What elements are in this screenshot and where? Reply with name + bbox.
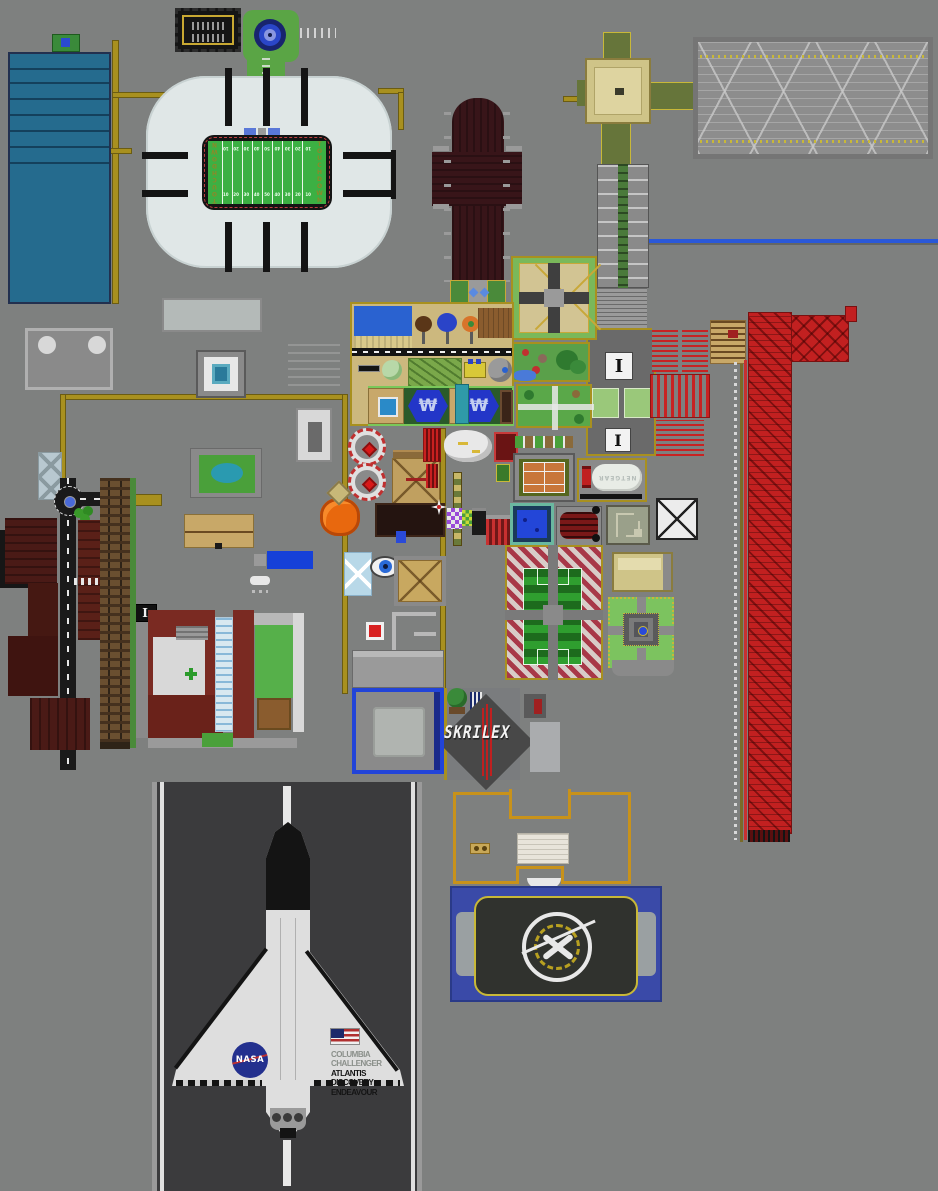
- us-flag: [330, 1028, 360, 1045]
- farm-field: [255, 625, 293, 698]
- fleet-name-discovery: DISCOVERY: [331, 1078, 411, 1087]
- ladder-structure: [710, 320, 746, 364]
- gray-globe: [488, 358, 512, 382]
- cpu-chip-building: [175, 8, 241, 52]
- cathedral-buttresses: [503, 112, 510, 282]
- green-globe: [382, 360, 402, 380]
- circuit-board-pad: [606, 505, 650, 545]
- ziggurat: [623, 613, 659, 646]
- cathedral-buttresses: [444, 112, 451, 282]
- tv-screen: [212, 364, 230, 384]
- pond: [514, 370, 536, 381]
- tv-building: [196, 350, 246, 398]
- tan-hall: [612, 552, 673, 592]
- greenhouse-room: [592, 388, 619, 418]
- red-lattice-tower: [682, 328, 708, 372]
- greenhouse-room: [624, 388, 651, 418]
- stadium-aisle: [343, 190, 393, 197]
- path-segment: [342, 394, 348, 694]
- potted-tree: [446, 688, 468, 714]
- maroon-block: [8, 636, 58, 696]
- maroon-block: [30, 698, 90, 750]
- yard-numbers-bottom: 102030405040302010: [223, 192, 311, 197]
- space-shuttle: NASA COLUMBIA CHALLENGER ATLANTIS DISCOV…: [168, 822, 408, 1144]
- stadium-aisle: [142, 152, 188, 159]
- black-panel: [472, 508, 486, 535]
- path-segment: [108, 148, 132, 154]
- dark-slab-building: [375, 503, 445, 537]
- park-bench: [358, 365, 380, 372]
- red-lattice-tower: [656, 420, 704, 456]
- payload-bay-line: [295, 918, 296, 1080]
- wheat-door: [215, 543, 222, 549]
- white-hall: [296, 408, 332, 462]
- press-box: [244, 128, 256, 135]
- stadium-aisle: [391, 150, 396, 199]
- maroon-block: [28, 583, 58, 641]
- fleet-name-atlantis: ATLANTIS: [331, 1069, 411, 1078]
- router-brand-label: NETGEAR: [598, 474, 637, 481]
- railway: [100, 478, 130, 748]
- endzone-left: TOUCHDOWN: [208, 141, 222, 204]
- track-lawn-strip: [130, 478, 136, 748]
- park-beach: [354, 336, 412, 348]
- maroon-block: [5, 518, 57, 584]
- info-marker-2: I: [605, 428, 631, 452]
- currency-glyph: ₩: [470, 396, 489, 416]
- chip-comb: [192, 22, 224, 30]
- cathedral-buttresses: [506, 146, 522, 151]
- stadium-aisle: [142, 190, 188, 197]
- stairs: [595, 288, 647, 328]
- cart-canopy: [468, 359, 473, 364]
- ziggurat-gem: [638, 626, 648, 636]
- hospital-wing-south: [148, 695, 223, 738]
- dirt-field: [478, 308, 512, 338]
- yard-number: 40: [275, 146, 281, 151]
- pavilion-ramp-north: [603, 32, 631, 60]
- checker-tower-purple: [447, 508, 462, 529]
- yard-number: 40: [274, 192, 280, 197]
- tree: [574, 414, 584, 424]
- blue-bin: [396, 531, 406, 543]
- router-building: NETGEAR: [592, 464, 642, 491]
- park-road: [352, 348, 512, 356]
- coaster-truss-column: [748, 312, 792, 834]
- coaster-rail-line: [744, 360, 747, 840]
- road-junction: [543, 605, 563, 625]
- courtyard-fixture: [176, 626, 208, 640]
- green-plot: [496, 464, 510, 482]
- kiosk-screen: [378, 397, 398, 417]
- gold-ornament: [470, 843, 490, 854]
- garden-plots-row: [515, 436, 573, 448]
- yard-number: 30: [285, 146, 291, 151]
- pool-dot: [523, 518, 527, 522]
- tree-pot: [449, 707, 465, 714]
- carnival-ride-pad: [348, 463, 386, 501]
- monorail-line: [648, 239, 938, 243]
- payload-bay-line: [280, 918, 281, 1080]
- path-segment: [112, 40, 119, 304]
- shuttle-aft: [270, 1108, 306, 1130]
- berry-bush: [522, 349, 529, 356]
- press-box: [258, 128, 266, 135]
- tree: [524, 390, 534, 400]
- tree-trunk: [422, 330, 425, 344]
- kiosk-building: [368, 388, 404, 424]
- red-door: [534, 699, 542, 714]
- farm-dirt-patch: [257, 698, 291, 730]
- nasa-meatball: NASA: [232, 1042, 268, 1078]
- street-bench: [250, 576, 270, 585]
- snowflake-panel: [344, 552, 372, 596]
- stadium-aisle: [263, 222, 270, 272]
- warehouse-rivet-row: [700, 140, 926, 143]
- gift-box: [366, 622, 384, 640]
- fleet-names: COLUMBIA CHALLENGER ATLANTIS DISCOVERY E…: [331, 1050, 411, 1097]
- stadium-aisle: [301, 222, 308, 272]
- red-cabin: [728, 330, 738, 338]
- green-cross: [185, 668, 197, 680]
- overhead-city-map: TOUCHDOWN TOUCHDOWN 102030405040302010 1…: [0, 0, 938, 1191]
- small-pyramid: [398, 560, 442, 602]
- hall-door: [308, 422, 322, 452]
- stadium-aisle: [225, 68, 232, 126]
- eye-pupil: [383, 564, 388, 569]
- mini-park: [516, 384, 592, 428]
- roundabout-center: [268, 33, 272, 37]
- tree-foliage: [447, 688, 467, 708]
- endzone-right-label: TOUCHDOWN: [316, 141, 322, 204]
- tree: [572, 390, 580, 398]
- nasa-wordmark: NASA: [236, 1055, 264, 1065]
- yard-number: 50: [264, 146, 270, 151]
- tan-hall-side: [663, 554, 671, 590]
- cloud-sculpture: [444, 430, 492, 462]
- teal-roof-building: [8, 52, 111, 304]
- coaster-queue-line: [734, 362, 737, 840]
- coaster-truss-hook: [845, 306, 857, 322]
- stage-speaker: [38, 336, 56, 354]
- yard-numbers-top: 102030405040302010: [223, 146, 311, 151]
- cross-bar: [185, 672, 197, 676]
- stadium-aisle: [343, 152, 393, 159]
- path-segment: [398, 92, 404, 130]
- router-shadow-bar: [580, 494, 642, 499]
- crossed-square: [656, 498, 698, 540]
- sign-lines: [288, 344, 340, 392]
- pavilion-core: [615, 88, 624, 95]
- path-segment: [132, 494, 162, 506]
- street-dots: [252, 590, 268, 593]
- dark-door-building: [500, 390, 513, 424]
- yard-number: 10: [305, 192, 311, 197]
- teal-pillar: [455, 384, 469, 424]
- stage-speaker: [88, 336, 106, 354]
- dotted-walkway: [300, 28, 336, 38]
- machine-knob: [592, 534, 600, 542]
- info-marker-glyph: I: [614, 431, 621, 450]
- cloud-accent: [458, 442, 468, 445]
- tan-hall-skylight: [618, 558, 661, 570]
- brown-tree: [415, 316, 432, 332]
- cart-canopy: [476, 359, 481, 364]
- red-bar-towers: [650, 374, 710, 418]
- skrillex-logo: SKRILEX: [434, 722, 520, 744]
- yard-number: 40: [254, 192, 260, 197]
- cloud-accent: [472, 450, 480, 453]
- tree-garden: [510, 342, 590, 382]
- press-box: [268, 128, 280, 135]
- farm-white-frame: [293, 613, 304, 732]
- tree-trunk: [470, 330, 473, 344]
- skrillex-logo-text: SKRILEX: [442, 723, 512, 743]
- yard-number: 20: [233, 146, 239, 151]
- yard-number: 20: [295, 192, 301, 197]
- yard-number: 10: [223, 192, 229, 197]
- yard-number: 20: [233, 192, 239, 197]
- rooftop-unit: [52, 34, 80, 52]
- engine-nozzle: [294, 1113, 303, 1122]
- curtain-building: [486, 515, 511, 545]
- ornament-dot: [474, 846, 479, 851]
- star-core: [437, 505, 441, 509]
- radiator-annex: [426, 464, 438, 488]
- engine-nozzle: [272, 1113, 281, 1122]
- stadium-aisle: [263, 68, 270, 126]
- cathedral-buttresses: [433, 204, 449, 209]
- crosswalk: [74, 578, 102, 585]
- billboard-post: [254, 554, 266, 566]
- gabled-roof: [352, 650, 444, 688]
- grand-staircase: [517, 833, 569, 864]
- engine-nozzle: [283, 1113, 292, 1122]
- runway-edge-line: [160, 782, 164, 1191]
- fleet-name-columbia: COLUMBIA: [331, 1050, 411, 1059]
- plaza-path: [608, 626, 624, 635]
- light-patio: [530, 722, 560, 772]
- berry-bush: [538, 354, 547, 363]
- cathedral-buttresses: [433, 146, 449, 151]
- path-segment-thin: [740, 358, 743, 842]
- wall-segment: [414, 632, 436, 636]
- pool-water: [517, 510, 547, 538]
- yard-number: 30: [244, 192, 250, 197]
- radiator-building: [423, 428, 441, 462]
- pavilion-ramp-east: [649, 82, 697, 110]
- tree: [570, 360, 586, 374]
- info-marker-glyph: I: [142, 606, 148, 620]
- blue-billboard: [267, 551, 313, 569]
- yard-number: 30: [244, 146, 250, 151]
- runway-centerline-dash: [283, 1140, 291, 1186]
- chevron-road-median: [618, 164, 628, 288]
- blue-frame-stage: [352, 688, 444, 774]
- gray-shed: [524, 694, 546, 718]
- orange-tree-core: [468, 321, 474, 327]
- pond-water: [211, 463, 243, 483]
- stage-side-dark: [434, 692, 440, 770]
- mansion-notch-top: [509, 789, 571, 819]
- red-lattice-tower: [652, 328, 678, 372]
- fleet-name-challenger: CHALLENGER: [331, 1059, 411, 1068]
- yard-number: 10: [305, 146, 311, 151]
- swimming-pool: [510, 503, 554, 545]
- endzone-right: TOUCHDOWN: [312, 141, 326, 204]
- rooftop-unit-core: [61, 38, 70, 47]
- farm-roof-strip: [254, 613, 297, 625]
- warehouse-rivet-row: [700, 55, 926, 58]
- stadium-aisle: [225, 222, 232, 272]
- yard-number: 30: [285, 192, 291, 197]
- orange-tree: [462, 316, 479, 332]
- red-totem: [582, 466, 591, 488]
- fleet-name-endeavour: ENDEAVOUR: [331, 1088, 411, 1097]
- lawn-strip: [202, 733, 233, 747]
- park-cross-path: [518, 404, 594, 410]
- hospital-east-slab: [233, 610, 254, 738]
- khaki-pavilion: [585, 58, 651, 124]
- blue-tree: [437, 313, 457, 332]
- plaza-apron: [612, 660, 674, 676]
- yellow-cart: [464, 362, 486, 378]
- info-marker-1: I: [605, 352, 633, 380]
- glass-atrium: [215, 617, 233, 732]
- elevon-dashes: [176, 1080, 262, 1086]
- wheat-building: [184, 514, 254, 548]
- plaza-path: [637, 597, 646, 614]
- pool-dot: [535, 528, 539, 532]
- plaza-path: [658, 626, 674, 635]
- pyramid-flag: [406, 478, 426, 481]
- pagoda-core: [544, 289, 564, 307]
- stage-panel: [373, 707, 425, 757]
- shuttle-tail-tip: [280, 1128, 296, 1138]
- ornament-dot: [482, 846, 487, 851]
- yard-number: 10: [223, 146, 229, 151]
- coaster-truss-base: [748, 830, 790, 842]
- machine-knob: [592, 506, 600, 514]
- globe-dot: [502, 367, 508, 373]
- endzone-left-label: TOUCHDOWN: [212, 141, 218, 204]
- tennis-court: [523, 462, 565, 493]
- stadium-aisle: [301, 68, 308, 126]
- currency-glyph: ₩: [419, 396, 438, 416]
- chip-comb: [192, 34, 224, 42]
- tree-trunk: [446, 330, 449, 344]
- pavilion-ramp-south: [601, 122, 631, 168]
- coaster-truss-arm: [790, 315, 849, 362]
- yard-number: 20: [295, 146, 301, 151]
- pond-pad: [190, 448, 262, 498]
- wall-segment: [392, 612, 436, 616]
- flat-roof-building: [162, 298, 262, 332]
- yard-number: 40: [254, 146, 260, 151]
- carnival-ride-pad: [348, 428, 386, 466]
- yard-number: 50: [264, 192, 270, 197]
- hospital-courtyard: [153, 637, 205, 695]
- railway-buffer: [100, 742, 130, 749]
- runway-edge-line: [411, 782, 415, 1191]
- cathedral-buttresses: [506, 204, 522, 209]
- info-marker-glyph: I: [615, 356, 623, 377]
- flag-canton: [331, 1029, 344, 1038]
